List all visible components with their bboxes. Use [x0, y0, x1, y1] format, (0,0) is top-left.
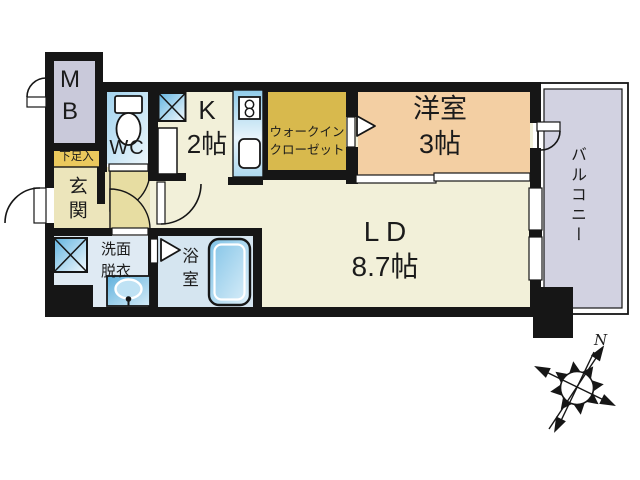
compass-north-label: N [594, 331, 607, 350]
room-label-bathroom: 浴室 [178, 247, 199, 294]
compass-rose-icon [536, 347, 614, 431]
room-label-entrance: 玄関 [64, 176, 88, 224]
bathtub-icon [209, 239, 250, 305]
room-label-mb: M B [45, 64, 95, 129]
room-label-balcony: バルコニー [566, 146, 586, 246]
room-label-walk-in-closet: ウォークイン クローゼット [264, 124, 350, 159]
sliding-door-icon [434, 173, 530, 181]
mb-door-leaf [27, 97, 46, 107]
label-shoe-box: 下足入 [53, 150, 100, 164]
washer-space-icon [54, 238, 87, 272]
floor-plan-page: M B WC K 2帖 ウォークイン クローゼット 洋室 3帖 L D 8.7帖… [0, 0, 640, 480]
entrance-door-leaf [34, 188, 46, 223]
room-label-western-room: 洋室 3帖 [364, 92, 516, 162]
room-label-wc: WC [104, 136, 150, 161]
balcony-door-leaf [537, 122, 560, 131]
room-label-washroom: 洗面 脱衣 [88, 239, 144, 283]
mb-door-arc-icon [27, 78, 46, 97]
sliding-door-icon [356, 175, 436, 183]
wc-door-leaf [109, 164, 148, 171]
bathroom-door-leaf [151, 239, 158, 263]
window-icon [529, 237, 542, 280]
washroom-door-leaf [112, 228, 148, 235]
window-icon [529, 188, 542, 230]
room-label-kitchen: K 2帖 [160, 94, 254, 162]
room-label-living-dining: L D 8.7帖 [304, 214, 466, 284]
ld-door-leaf [157, 182, 165, 224]
